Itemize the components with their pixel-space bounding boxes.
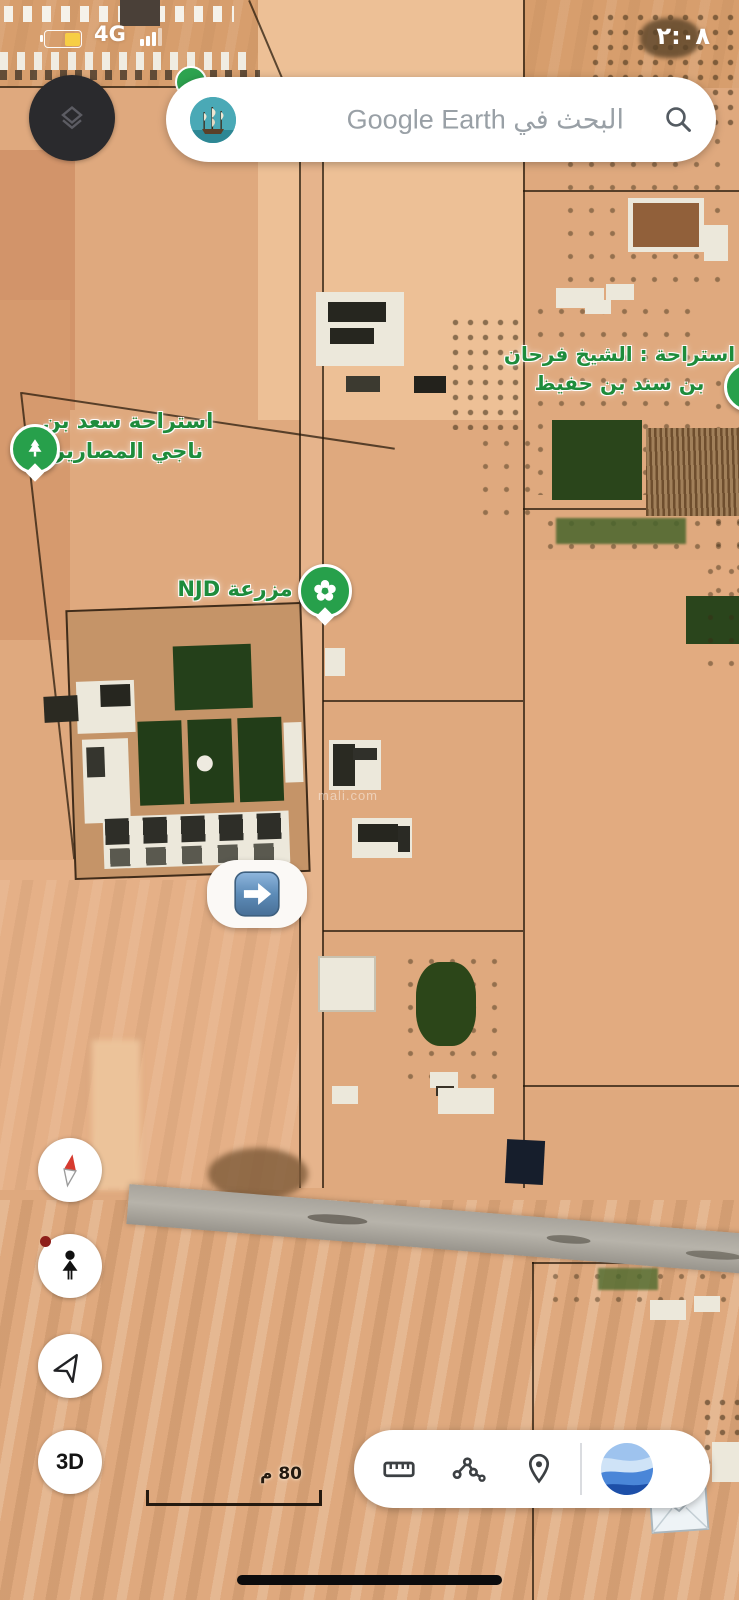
network-type: 4G <box>94 22 126 46</box>
map-building-courtyard <box>628 198 704 252</box>
signal-bar <box>158 28 162 46</box>
measure-path-button[interactable] <box>434 1430 504 1508</box>
farm-pin[interactable] <box>298 564 352 618</box>
search-icon <box>662 103 694 135</box>
map-trucks-row <box>0 52 250 70</box>
my-location-icon <box>53 1349 87 1383</box>
poi-label-sheikh[interactable]: استراحة : الشيخ فرحان بن سند بن حفيظ <box>500 340 739 398</box>
signal-bar <box>146 36 150 46</box>
clock: ٢:٠٨ <box>610 22 710 50</box>
map-building <box>325 648 345 676</box>
map-building <box>606 284 634 300</box>
map-farm-plot <box>237 717 284 802</box>
map-canvas[interactable]: mali.com استراحة سعد بن ناجي المصارير <box>0 0 739 1600</box>
map-building <box>438 1088 494 1114</box>
bottom-toolbar <box>354 1430 710 1508</box>
map-trucks-row <box>4 6 234 22</box>
3d-toggle-label: 3D <box>56 1449 84 1475</box>
compass-icon <box>50 1150 90 1190</box>
compass-button[interactable] <box>38 1138 102 1202</box>
3d-toggle-button[interactable]: 3D <box>38 1430 102 1494</box>
map-plot-boundary <box>523 0 525 1188</box>
map-building-roof <box>333 744 355 786</box>
map-street-edge <box>322 88 324 1188</box>
map-road-mark <box>686 1249 739 1261</box>
signal-bar <box>152 32 156 46</box>
map-dark-structure <box>120 0 160 26</box>
arrow-emoji-marker <box>207 860 307 928</box>
earth-logo-button[interactable] <box>588 1430 666 1508</box>
map-building <box>332 1086 358 1104</box>
tree-pin-icon <box>22 436 48 462</box>
map-building <box>585 300 611 314</box>
map-building <box>318 956 376 1012</box>
flower-pin-icon <box>310 576 340 606</box>
map-green-strip <box>598 1268 658 1290</box>
path-measure-icon <box>450 1450 488 1488</box>
map-structure <box>414 376 446 393</box>
blue-arrow-icon <box>233 870 281 918</box>
map-plot-boundary <box>323 930 523 932</box>
map-green-strip <box>556 518 686 544</box>
search-bar[interactable]: البحث في Google Earth <box>166 77 716 162</box>
map-farm-green-field <box>173 644 253 711</box>
map-road-mark <box>307 1212 368 1226</box>
battery-icon <box>44 30 82 48</box>
home-indicator[interactable] <box>237 1575 502 1585</box>
imagery-watermark: mali.com <box>318 788 378 803</box>
account-avatar[interactable] <box>190 97 236 143</box>
map-street <box>301 88 322 1188</box>
poi-label-njd[interactable]: مزرعة NJD <box>176 574 294 604</box>
add-placemark-button[interactable] <box>504 1430 574 1508</box>
layers-icon <box>54 100 90 136</box>
search-placeholder: البحث في Google Earth <box>347 104 624 135</box>
view-layers-button[interactable] <box>29 75 115 161</box>
map-building-roof <box>328 302 386 322</box>
map-building <box>650 1300 686 1320</box>
map-structure <box>346 376 380 392</box>
map-building-roof <box>358 824 398 842</box>
poi-label-sheikh-line2: بن سند بن حفيظ <box>500 369 739 398</box>
map-farm-building <box>283 722 303 783</box>
map-structure <box>505 1139 545 1185</box>
pegman-icon <box>52 1248 88 1284</box>
map-scale-bar: 80 م <box>146 1468 316 1508</box>
google-earth-app: mali.com استراحة سعد بن ناجي المصارير <box>0 0 739 1600</box>
location-pin-icon <box>521 1451 557 1487</box>
google-earth-logo <box>600 1442 654 1496</box>
battery-level <box>65 33 79 46</box>
signal-bar <box>140 39 144 46</box>
map-building <box>694 1296 720 1312</box>
map-plot-boundary <box>523 1085 739 1087</box>
scale-label: 80 م <box>260 1464 302 1484</box>
ruler-icon <box>381 1451 417 1487</box>
map-farm-compound <box>65 602 310 880</box>
park-pin[interactable] <box>10 424 60 474</box>
poi-label-saad-line1: استراحة سعد بن <box>28 406 228 436</box>
map-orchard <box>475 432 533 517</box>
toolbar-divider <box>580 1443 582 1495</box>
map-farm-roof <box>86 747 105 778</box>
pegman-notification-dot <box>40 1236 51 1247</box>
search-button[interactable] <box>662 103 694 135</box>
map-building-roof <box>353 748 377 760</box>
map-building <box>704 225 728 261</box>
map-farm-roof <box>100 684 131 707</box>
map-road-mark <box>546 1234 590 1246</box>
map-farm-plot <box>137 720 184 805</box>
map-building-roof <box>398 826 410 852</box>
measure-ruler-button[interactable] <box>364 1430 434 1508</box>
map-building-roof <box>330 328 374 344</box>
map-orchard <box>700 560 739 680</box>
ship-avatar-icon <box>190 97 236 143</box>
map-plot-boundary <box>323 700 523 702</box>
map-building <box>712 1442 739 1482</box>
map-green-field <box>552 420 642 500</box>
signal-icon <box>140 28 166 46</box>
my-location-button[interactable] <box>38 1334 102 1398</box>
scale-line <box>146 1490 322 1506</box>
battery-cap <box>40 35 43 42</box>
poi-label-sheikh-line1: استراحة : الشيخ فرحان <box>500 340 739 369</box>
map-plowed-field <box>646 428 739 516</box>
map-structure <box>43 695 78 723</box>
map-green-patch <box>416 962 476 1046</box>
